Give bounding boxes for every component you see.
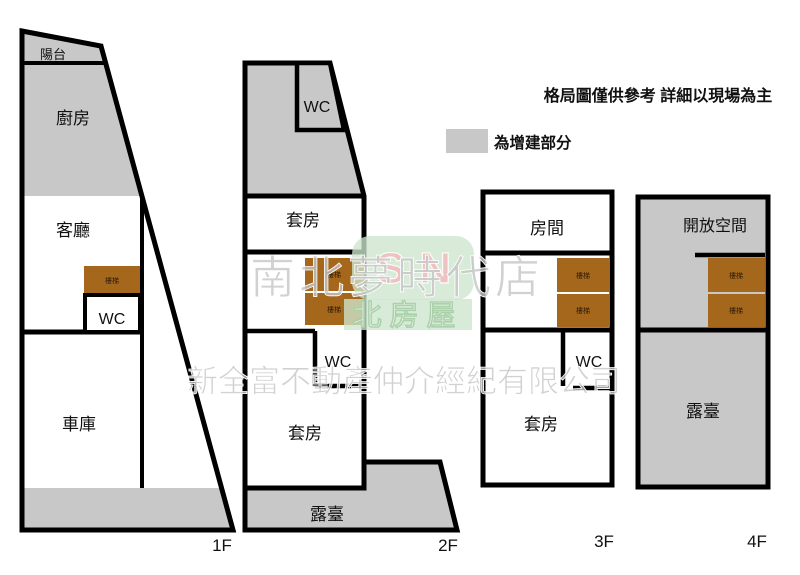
legend-swatch: [446, 129, 488, 153]
f4-outline: [638, 197, 768, 487]
f2-wc-top-label: WC: [304, 99, 331, 116]
f3-floor-label: 3F: [594, 532, 614, 551]
floor-1f-plan: 陽台 廚房 客廳 樓梯 WC 車庫 1F: [22, 31, 233, 555]
f4-stairs-upper-label: 樓梯: [729, 271, 743, 280]
f1-garage-label: 車庫: [62, 415, 96, 434]
disclaimer-text: 格局圖僅供參考 詳細以現場為主: [544, 86, 772, 105]
f1-floor-label: 1F: [212, 536, 232, 555]
f2-suite-label: 套房: [288, 424, 322, 443]
floor-plan-canvas: 陽台 廚房 客廳 樓梯 WC 車庫 1F WC 套房 樓梯 樓梯 WC 套房 露…: [0, 0, 800, 575]
f2-terrace-label: 露臺: [310, 505, 344, 524]
f4-stairs-lower-label: 樓梯: [729, 306, 743, 315]
f1-kitchen-label: 廚房: [56, 108, 90, 128]
f4-terrace-label: 露臺: [686, 402, 720, 421]
f3-suite-label: 套房: [524, 415, 558, 434]
f2-suite-top-label: 套房: [286, 211, 320, 230]
f1-addition-strip: [22, 488, 233, 530]
watermark-store-name: 南北夢時代店: [250, 252, 544, 303]
f2-stairs-lower-label: 樓梯: [327, 305, 341, 314]
legend-label: 為增建部分: [494, 133, 572, 152]
f4-open-space-label: 開放空間: [683, 217, 747, 235]
f3-stairs-lower-label: 樓梯: [576, 306, 590, 315]
f3-room-label: 房間: [530, 219, 564, 238]
f4-floor-label: 4F: [747, 532, 767, 551]
f1-wc-label: WC: [99, 311, 126, 328]
f1-living-room-label: 客廳: [56, 221, 90, 240]
f2-wc-top-area: [297, 63, 344, 130]
floor-4f-plan: 開放空間 樓梯 樓梯 露臺 4F: [638, 197, 768, 551]
f1-balcony-label: 陽台: [40, 47, 66, 62]
watermark-company-name: 新全富不動產仲介經紀有限公司: [187, 364, 621, 399]
f1-stairs-label: 樓梯: [105, 276, 119, 285]
f2-floor-label: 2F: [438, 536, 458, 555]
watermark-brand-name: 北房屋: [352, 299, 463, 332]
f3-stairs-upper-label: 樓梯: [576, 271, 590, 280]
